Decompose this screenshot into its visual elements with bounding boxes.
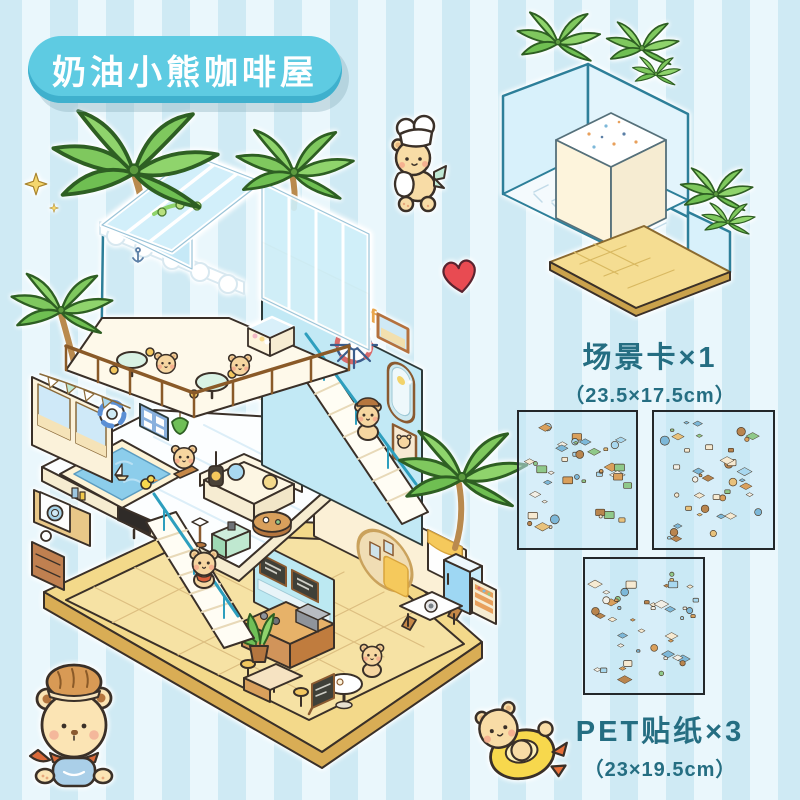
coffee-table — [253, 512, 291, 537]
palm-tree-icon — [702, 203, 755, 234]
sticker-sheet-3 — [583, 557, 705, 695]
title-badge-label: 奶油小熊咖啡屋 — [52, 54, 318, 92]
towel — [395, 172, 414, 197]
scene-card-label: 场景卡×1 — [495, 334, 800, 376]
scene-card-size: （23.5×17.5cm） — [495, 379, 800, 408]
chef-bear-illustration — [376, 112, 460, 216]
star-icon — [50, 204, 59, 213]
palm-tree-icon — [517, 12, 600, 60]
palm-tree-icon — [633, 57, 681, 85]
palm-tree-icon — [681, 168, 753, 210]
climbing-bear — [355, 398, 381, 440]
sticker-sheet-1 — [517, 410, 638, 550]
scene-card-caption: 场景卡×1 （23.5×17.5cm） — [495, 334, 800, 408]
vending-machine — [472, 578, 496, 624]
framed-bear — [397, 435, 411, 448]
bread-bear-illustration — [20, 650, 128, 795]
side-cabinet — [32, 531, 64, 590]
swim-bear-illustration — [463, 688, 598, 800]
product-poster: coffee — [0, 0, 800, 800]
sticker-sheet-2 — [652, 410, 775, 550]
scene-card-illustration — [494, 12, 776, 314]
bread-icon — [47, 665, 101, 701]
cafe-bear — [360, 644, 383, 677]
star-icon — [25, 173, 47, 195]
fin — [551, 764, 567, 778]
heart-icon — [438, 256, 482, 298]
chef-hat-icon — [397, 116, 434, 147]
title-badge: 奶油小熊咖啡屋 — [28, 36, 342, 103]
scarf — [30, 750, 50, 761]
bib — [53, 758, 95, 786]
stairs-bear — [190, 550, 218, 588]
